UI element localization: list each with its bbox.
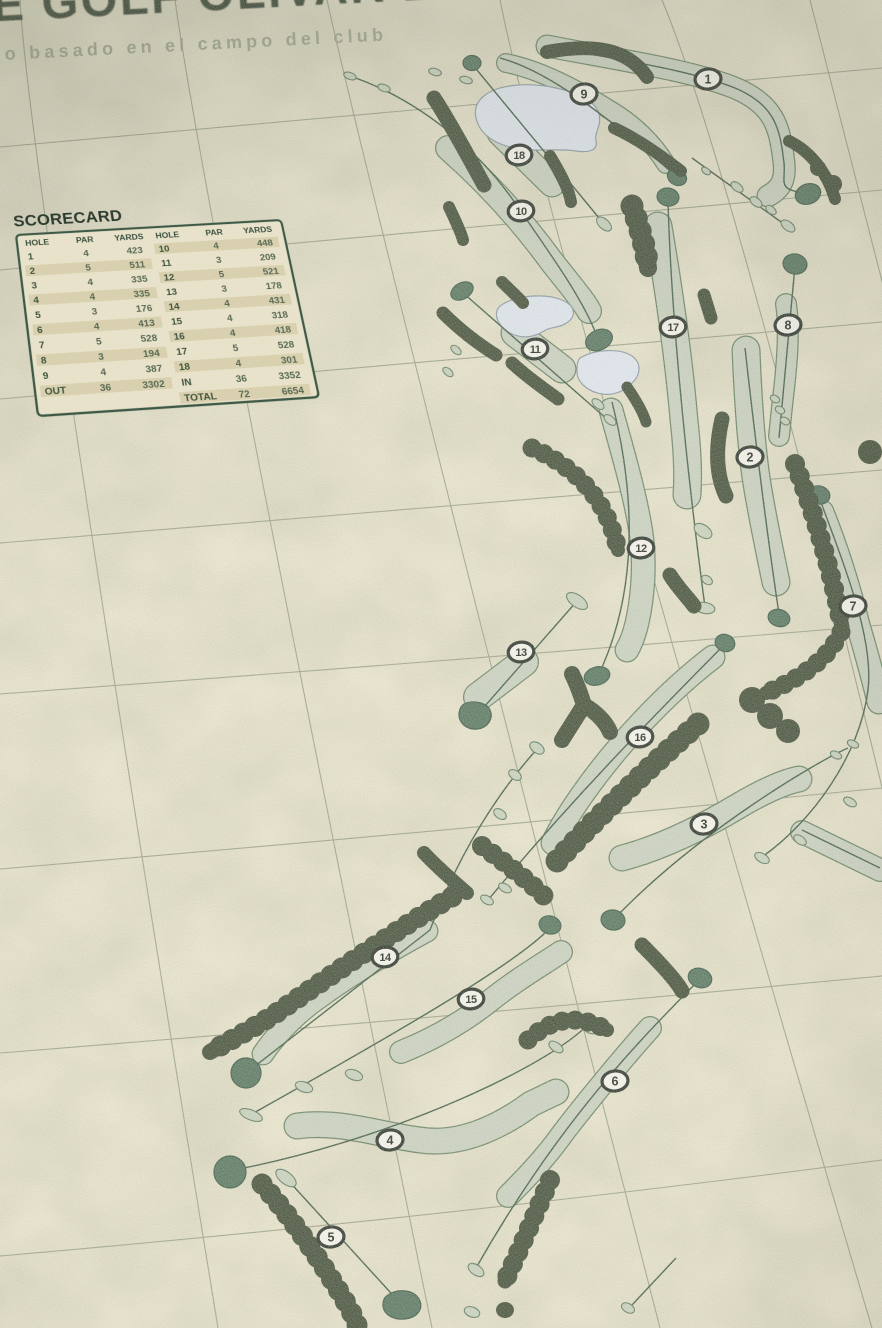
svg-text:3: 3: [31, 280, 38, 291]
svg-text:14: 14: [168, 301, 181, 312]
svg-text:9: 9: [42, 370, 49, 381]
svg-text:6: 6: [36, 324, 43, 335]
svg-text:HOLE: HOLE: [155, 230, 181, 240]
svg-text:10: 10: [158, 243, 170, 254]
svg-text:3302: 3302: [142, 378, 166, 390]
svg-text:3352: 3352: [278, 369, 302, 381]
svg-text:528: 528: [277, 339, 296, 351]
svg-text:1: 1: [27, 251, 34, 261]
svg-text:16: 16: [173, 331, 186, 342]
svg-text:418: 418: [274, 324, 292, 336]
svg-text:301: 301: [280, 354, 299, 366]
svg-text:521: 521: [262, 266, 280, 277]
svg-text:194: 194: [142, 347, 160, 359]
svg-text:36: 36: [99, 382, 112, 394]
svg-text:413: 413: [137, 317, 155, 329]
svg-text:431: 431: [268, 295, 286, 306]
svg-text:5: 5: [35, 309, 42, 320]
svg-text:528: 528: [140, 332, 158, 344]
svg-text:36: 36: [235, 373, 248, 385]
svg-text:2: 2: [29, 266, 36, 276]
svg-text:4: 4: [33, 295, 40, 306]
svg-text:PAR: PAR: [205, 228, 224, 238]
svg-text:18: 18: [178, 361, 191, 373]
svg-text:YARDS: YARDS: [242, 225, 273, 235]
svg-text:176: 176: [135, 303, 153, 314]
svg-text:PAR: PAR: [75, 235, 94, 245]
svg-text:12: 12: [163, 272, 175, 283]
svg-text:448: 448: [256, 237, 274, 248]
svg-text:IN: IN: [181, 376, 193, 388]
svg-text:318: 318: [271, 309, 289, 320]
svg-text:17: 17: [175, 346, 188, 357]
svg-text:335: 335: [133, 288, 151, 299]
svg-text:423: 423: [126, 245, 144, 256]
svg-text:335: 335: [130, 274, 148, 285]
svg-text:HOLE: HOLE: [25, 237, 51, 247]
svg-text:13: 13: [165, 286, 178, 297]
svg-text:511: 511: [129, 259, 146, 270]
svg-text:6654: 6654: [281, 385, 305, 397]
svg-text:178: 178: [265, 280, 283, 291]
svg-text:YARDS: YARDS: [114, 232, 145, 243]
svg-text:15: 15: [170, 316, 183, 327]
svg-text:TOTAL: TOTAL: [183, 390, 218, 403]
svg-text:7: 7: [38, 339, 45, 350]
svg-text:72: 72: [238, 388, 251, 400]
svg-text:8: 8: [40, 355, 47, 366]
svg-text:OUT: OUT: [44, 385, 67, 397]
svg-text:387: 387: [145, 363, 163, 375]
svg-text:209: 209: [259, 252, 277, 263]
svg-text:11: 11: [160, 258, 172, 269]
